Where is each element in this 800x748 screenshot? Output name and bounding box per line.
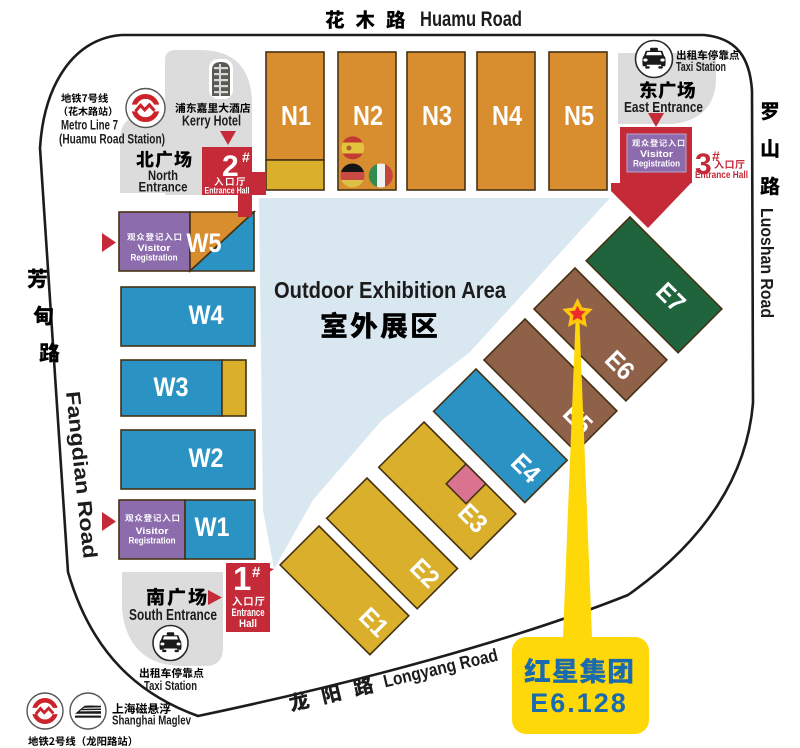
svg-text:Entrance: Entrance bbox=[139, 179, 188, 195]
svg-text:W2: W2 bbox=[189, 443, 224, 473]
svg-text:Registration: Registration bbox=[131, 253, 178, 264]
svg-text:W1: W1 bbox=[195, 512, 230, 542]
svg-text:Huamu Road: Huamu Road bbox=[420, 8, 522, 31]
svg-text:W5: W5 bbox=[187, 228, 222, 258]
svg-text:Kerry Hotel: Kerry Hotel bbox=[182, 114, 241, 130]
svg-text:N3: N3 bbox=[422, 100, 452, 131]
svg-text:E6.128: E6.128 bbox=[530, 688, 628, 718]
svg-text:Luoshan Road: Luoshan Road bbox=[757, 208, 777, 318]
svg-text:South Entrance: South Entrance bbox=[129, 607, 217, 624]
svg-text:N1: N1 bbox=[281, 100, 311, 131]
svg-text:Hall: Hall bbox=[239, 618, 257, 630]
svg-text:W3: W3 bbox=[154, 372, 189, 402]
svg-text:East Entrance: East Entrance bbox=[624, 99, 703, 116]
svg-text:W4: W4 bbox=[189, 300, 224, 330]
svg-text:#: # bbox=[242, 149, 250, 165]
svg-text:Taxi Station: Taxi Station bbox=[144, 679, 197, 693]
svg-text:1: 1 bbox=[233, 560, 251, 597]
svg-text:Outdoor Exhibition Area: Outdoor Exhibition Area bbox=[274, 277, 506, 303]
svg-text:N4: N4 bbox=[492, 100, 522, 131]
svg-text:Entrance Hall: Entrance Hall bbox=[695, 169, 748, 181]
svg-text:Taxi Station: Taxi Station bbox=[676, 60, 726, 74]
svg-text:N5: N5 bbox=[564, 100, 594, 131]
svg-text:#: # bbox=[252, 564, 261, 581]
svg-text:Metro Line 7: Metro Line 7 bbox=[61, 117, 118, 133]
svg-text:Entrance Hall: Entrance Hall bbox=[205, 186, 250, 196]
svg-text:Registration: Registration bbox=[129, 536, 176, 547]
svg-text:(Huamu Road Station): (Huamu Road Station) bbox=[59, 132, 165, 147]
svg-text:N2: N2 bbox=[353, 100, 383, 131]
svg-text:Registration: Registration bbox=[633, 159, 680, 170]
svg-text:Shanghai Maglev: Shanghai Maglev bbox=[112, 713, 192, 728]
